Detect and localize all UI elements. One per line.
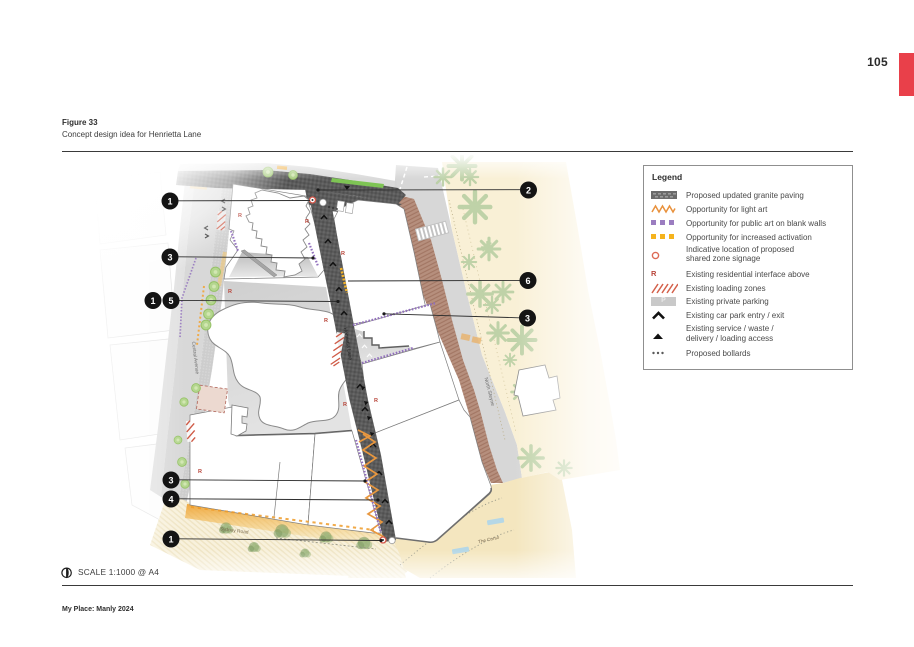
svg-text:2: 2 <box>526 185 531 195</box>
svg-text:R: R <box>374 398 378 404</box>
svg-text:1: 1 <box>168 534 173 544</box>
svg-text:1: 1 <box>167 196 172 206</box>
svg-text:6: 6 <box>525 276 530 286</box>
svg-text:3: 3 <box>168 475 173 485</box>
svg-text:R: R <box>324 318 328 324</box>
svg-text:5: 5 <box>168 296 173 306</box>
svg-text:4: 4 <box>168 494 173 504</box>
svg-text:1: 1 <box>150 296 155 306</box>
svg-text:R: R <box>198 469 202 475</box>
svg-text:R: R <box>343 402 347 408</box>
svg-text:3: 3 <box>525 313 530 323</box>
svg-text:3: 3 <box>167 252 172 262</box>
svg-text:R: R <box>341 251 345 257</box>
svg-text:R: R <box>305 219 309 225</box>
